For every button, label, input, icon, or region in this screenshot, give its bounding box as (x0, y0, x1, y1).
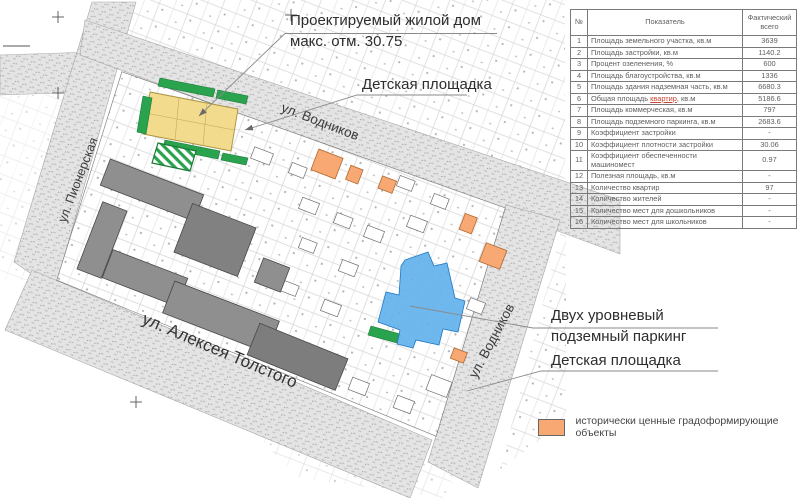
row-indicator: Количество квартир (588, 182, 743, 194)
row-value: - (743, 128, 797, 140)
row-number: 5 (571, 82, 588, 94)
annotation-parking-line2: подземный паркинг (551, 328, 686, 346)
table-row: 7Площадь коммерческая, кв.м797 (571, 105, 797, 117)
table-row: 14Количество жителей- (571, 194, 797, 206)
annotation-proposed-building-line2: макс. отм. 30.75 (290, 33, 481, 51)
row-indicator: Процент озеленения, % (588, 59, 743, 71)
row-number: 2 (571, 47, 588, 59)
row-number: 13 (571, 182, 588, 194)
row-number: 3 (571, 59, 588, 71)
row-indicator: Количество мест для школьников (588, 217, 743, 229)
row-number: 7 (571, 105, 588, 117)
row-value: 797 (743, 105, 797, 117)
row-number: 1 (571, 36, 588, 48)
row-value: 600 (743, 59, 797, 71)
row-indicator: Общая площадь квартир, кв.м (588, 93, 743, 105)
table-row: 3Процент озеленения, %600 (571, 59, 797, 71)
row-indicator: Коэффициент обеспеченности машиномест (588, 151, 743, 171)
row-indicator: Площадь благоустройства, кв.м (588, 70, 743, 82)
row-value: 0.97 (743, 151, 797, 171)
annotation-parking-line1: Двух уровневый (551, 307, 664, 324)
site-plan-page: ул. Пионерская ул. Водников ул. Водников… (0, 0, 800, 498)
table-row: 9Коэффициент застройки- (571, 128, 797, 140)
row-value: 1336 (743, 70, 797, 82)
row-value: - (743, 205, 797, 217)
row-value: 1140.2 (743, 47, 797, 59)
table-row: 5Площадь здания надземная часть, кв.м668… (571, 82, 797, 94)
row-number: 9 (571, 128, 588, 140)
row-indicator: Площадь земельного участка, кв.м (588, 36, 743, 48)
annotation-proposed-building-line1: Проектируемый жилой дом (290, 12, 481, 29)
table-header-row: № Показатель Фактический всего (571, 10, 797, 36)
table-row: 6Общая площадь квартир, кв.м5186.6 (571, 93, 797, 105)
indicators-table: № Показатель Фактический всего 1Площадь … (570, 9, 797, 229)
row-number: 10 (571, 139, 588, 151)
row-value: - (743, 171, 797, 183)
annotation-underground-parking: Двух уровневый подземный паркинг (551, 307, 686, 346)
row-indicator: Количество жителей (588, 194, 743, 206)
row-indicator: Коэффициент застройки (588, 128, 743, 140)
table-row: 12Полезная площадь, кв.м- (571, 171, 797, 183)
row-value: - (743, 194, 797, 206)
row-number: 8 (571, 116, 588, 128)
table-row: 16Количество мест для школьников- (571, 217, 797, 229)
row-number: 6 (571, 93, 588, 105)
row-indicator: Площадь застройки, кв.м (588, 47, 743, 59)
annotation-playground-top: Детская площадка (362, 76, 492, 94)
legend-swatch (538, 419, 565, 436)
header-actual: Фактический всего (743, 10, 797, 36)
row-indicator: Площадь подземного паркинга, кв.м (588, 116, 743, 128)
table-row: 1Площадь земельного участка, кв.м3639 (571, 36, 797, 48)
row-value: 6680.3 (743, 82, 797, 94)
row-number: 4 (571, 70, 588, 82)
legend-label: исторически ценные градоформирующие объе… (575, 415, 800, 439)
row-number: 16 (571, 217, 588, 229)
header-num: № (571, 10, 588, 36)
row-value: - (743, 217, 797, 229)
row-number: 14 (571, 194, 588, 206)
row-value: 2683.6 (743, 116, 797, 128)
row-number: 11 (571, 151, 588, 171)
row-value: 5186.6 (743, 93, 797, 105)
table-row: 10Коэффициент плотности застройки30.06 (571, 139, 797, 151)
legend: исторически ценные градоформирующие объе… (538, 415, 800, 439)
annotation-proposed-building: Проектируемый жилой дом макс. отм. 30.75 (290, 12, 481, 51)
row-indicator: Коэффициент плотности застройки (588, 139, 743, 151)
annotation-playground-bottom: Детская площадка (551, 352, 681, 370)
table-row: 11Коэффициент обеспеченности машиномест0… (571, 151, 797, 171)
row-value: 3639 (743, 36, 797, 48)
row-indicator: Площадь здания надземная часть, кв.м (588, 82, 743, 94)
row-indicator: Полезная площадь, кв.м (588, 171, 743, 183)
table-row: 2Площадь застройки, кв.м1140.2 (571, 47, 797, 59)
table-row: 13Количество квартир97 (571, 182, 797, 194)
row-indicator: Площадь коммерческая, кв.м (588, 105, 743, 117)
row-number: 12 (571, 171, 588, 183)
row-value: 97 (743, 182, 797, 194)
row-number: 15 (571, 205, 588, 217)
row-value: 30.06 (743, 139, 797, 151)
table-row: 8Площадь подземного паркинга, кв.м2683.6 (571, 116, 797, 128)
table-row: 15Количество мест для дошкольников- (571, 205, 797, 217)
row-indicator: Количество мест для дошкольников (588, 205, 743, 217)
table-row: 4Площадь благоустройства, кв.м1336 (571, 70, 797, 82)
header-indicator: Показатель (588, 10, 743, 36)
